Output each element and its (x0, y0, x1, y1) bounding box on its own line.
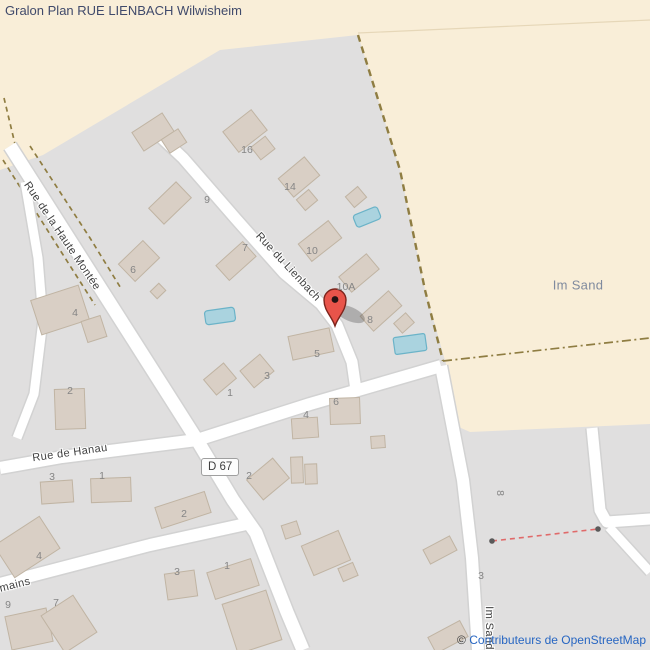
attribution: © Contributeurs de OpenStreetMap (457, 633, 646, 647)
line-endpoint-dot (595, 526, 601, 532)
map-page: { "title": "Gralon Plan RUE LIENBACH Wil… (0, 0, 650, 650)
line-endpoint-dot (489, 538, 495, 544)
osm-attribution-link[interactable]: Contributeurs de OpenStreetMap (469, 633, 646, 647)
road-ref-badge: D 67 (201, 458, 239, 476)
page-title: Gralon Plan RUE LIENBACH Wilwisheim (5, 3, 242, 18)
copyright-symbol: © (457, 633, 466, 647)
marker-pin-dot (332, 296, 339, 303)
map-canvas[interactable] (0, 0, 650, 650)
